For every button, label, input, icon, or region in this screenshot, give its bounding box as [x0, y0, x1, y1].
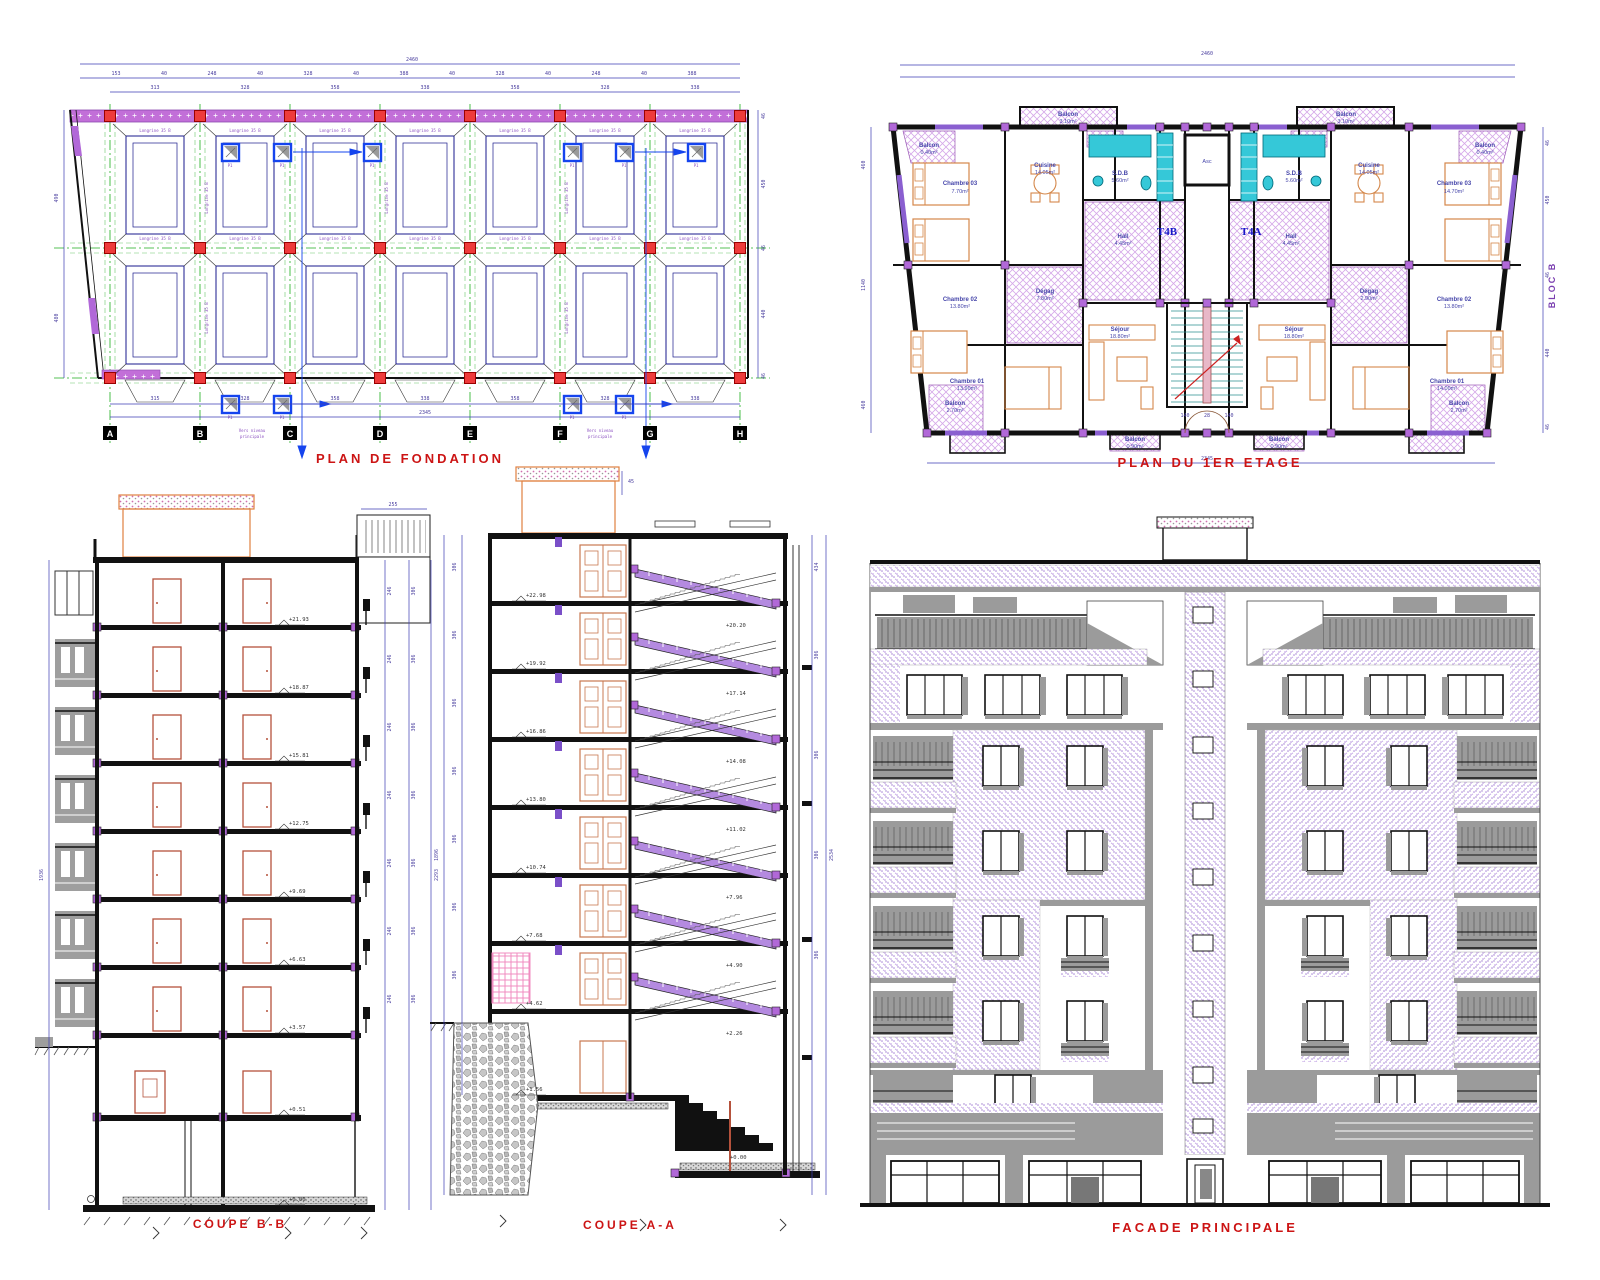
svg-text:Longrine 35 B: Longrine 35 B [139, 236, 171, 241]
svg-text:+7.96: +7.96 [726, 895, 743, 901]
svg-text:490: 490 [54, 193, 60, 202]
svg-text:Séjour: Séjour [1285, 327, 1304, 333]
apartment-label-t4a: T4A [1241, 226, 1262, 238]
svg-text:358: 358 [330, 396, 339, 402]
svg-text:Longrine 35 B: Longrine 35 B [229, 236, 261, 241]
svg-text:246: 246 [387, 586, 393, 595]
svg-text:46: 46 [1545, 272, 1551, 278]
svg-text:5.60m²: 5.60m² [1111, 178, 1128, 184]
svg-text:Longrine 35 B: Longrine 35 B [319, 236, 351, 241]
svg-text:Longrine 35 B: Longrine 35 B [499, 128, 531, 133]
svg-text:Balcon: Balcon [1475, 143, 1495, 149]
svg-text:13.80m²: 13.80m² [1444, 304, 1464, 310]
storeys [488, 537, 820, 1178]
svg-text:+15.81: +15.81 [289, 753, 309, 759]
svg-text:18.80m²: 18.80m² [1284, 334, 1304, 340]
svg-text:315: 315 [150, 396, 159, 402]
svg-text:450: 450 [1545, 195, 1551, 204]
svg-text:5.60m²: 5.60m² [1285, 178, 1302, 184]
svg-text:7.70m²: 7.70m² [951, 189, 968, 195]
svg-text:2460: 2460 [406, 57, 418, 63]
svg-text:+9.69: +9.69 [289, 889, 306, 895]
svg-text:Balcon: Balcon [1125, 437, 1145, 443]
svg-text:D: D [377, 429, 384, 439]
svg-text:1140: 1140 [861, 279, 867, 291]
svg-text:14.00m²: 14.00m² [1437, 386, 1457, 392]
svg-text:4.45m²: 4.45m² [1114, 241, 1131, 247]
svg-text:460: 460 [861, 160, 867, 169]
svg-text:Chambre 02: Chambre 02 [1437, 297, 1472, 303]
plan-left-half [889, 107, 1207, 453]
svg-text:+6.63: +6.63 [289, 957, 306, 963]
footing-cells [113, 124, 737, 402]
svg-text:246: 246 [387, 790, 393, 799]
svg-text:Longrine 35 B: Longrine 35 B [204, 302, 209, 334]
svg-text:434: 434 [814, 562, 820, 571]
svg-text:40: 40 [257, 71, 263, 77]
svg-text:P1: P1 [228, 163, 233, 168]
svg-text:Longrine 35 B: Longrine 35 B [564, 302, 569, 334]
svg-text:P1: P1 [280, 415, 285, 420]
roof-structure: 45 [490, 467, 788, 539]
svg-text:Chambre 01: Chambre 01 [1430, 379, 1465, 385]
svg-text:Longrine 35 B: Longrine 35 B [679, 128, 711, 133]
svg-text:Longrine 35 B: Longrine 35 B [589, 128, 621, 133]
svg-text:+20.20: +20.20 [726, 623, 746, 629]
svg-text:Asc: Asc [1202, 159, 1211, 165]
svg-text:1896: 1896 [434, 849, 440, 861]
svg-text:C: C [287, 429, 294, 439]
plan-right-half [1207, 107, 1525, 453]
svg-text:P1: P1 [370, 163, 375, 168]
svg-text:46: 46 [761, 245, 767, 251]
svg-text:Longrine 35 B: Longrine 35 B [319, 128, 351, 133]
svg-text:306: 306 [452, 970, 458, 979]
svg-text:306: 306 [452, 562, 458, 571]
svg-text:2460: 2460 [1201, 51, 1213, 57]
svg-text:+19.92: +19.92 [526, 661, 546, 667]
svg-text:P1: P1 [570, 415, 575, 420]
svg-text:248: 248 [207, 71, 216, 77]
svg-text:306: 306 [452, 698, 458, 707]
section-walls [490, 533, 812, 1175]
svg-text:328: 328 [303, 71, 312, 77]
svg-text:S.D.B: S.D.B [1112, 171, 1129, 177]
svg-text:+14.08: +14.08 [726, 759, 746, 765]
svg-text:45: 45 [628, 479, 634, 485]
svg-text:+1.56: +1.56 [526, 1087, 543, 1093]
svg-text:13.80m²: 13.80m² [950, 304, 970, 310]
panel-plan-fondation: P1P1P1P1P1P1 P1P1P1P1 Longrine 35 BLongr… [40, 48, 780, 480]
facade-left-half [870, 563, 1163, 1205]
svg-text:40: 40 [353, 71, 359, 77]
svg-text:P1: P1 [694, 163, 699, 168]
svg-text:P1: P1 [570, 163, 575, 168]
svg-text:H: H [737, 429, 744, 439]
svg-text:7.80m²: 7.80m² [1036, 296, 1053, 302]
svg-text:Hall: Hall [1117, 234, 1128, 240]
svg-text:+0.00: +0.00 [730, 1155, 747, 1161]
svg-text:principale: principale [240, 434, 265, 439]
svg-text:2345: 2345 [419, 410, 431, 416]
svg-text:+3.57: +3.57 [289, 1025, 306, 1031]
svg-text:246: 246 [387, 654, 393, 663]
svg-text:40: 40 [161, 71, 167, 77]
svg-text:Longrine 35 B: Longrine 35 B [229, 128, 261, 133]
panel-coupe-aa: 45 +22.98+19.92+16.86+13.80+10.74+7.68+4… [430, 455, 830, 1250]
svg-text:358: 358 [510, 396, 519, 402]
svg-text:Balcon: Balcon [945, 401, 965, 407]
left-balconies [35, 571, 97, 1055]
svg-text:principale: principale [588, 434, 613, 439]
svg-text:0.90m²: 0.90m² [1126, 444, 1143, 450]
svg-text:+0.51: +0.51 [289, 1107, 306, 1113]
svg-text:358: 358 [330, 85, 339, 91]
svg-text:0.40m²: 0.40m² [920, 150, 937, 156]
svg-text:+4.90: +4.90 [726, 963, 743, 969]
svg-text:328: 328 [600, 396, 609, 402]
svg-text:440: 440 [761, 309, 767, 318]
panel-coupe-bb: 255 +21.93+18.87+15.81+12.75+9.69+6.63+3… [35, 475, 445, 1245]
svg-text:Balcon: Balcon [1336, 112, 1356, 118]
svg-text:+10.74: +10.74 [526, 865, 547, 871]
svg-text:3.10m²: 3.10m² [1059, 119, 1076, 125]
svg-text:+4.62: +4.62 [526, 1001, 543, 1007]
apartment-label-t4b: T4B [1157, 226, 1178, 238]
svg-text:2534: 2534 [829, 849, 835, 861]
svg-text:306: 306 [814, 650, 820, 659]
svg-text:3.10m²: 3.10m² [1337, 119, 1354, 125]
svg-text:246: 246 [387, 926, 393, 935]
svg-text:+0.00: +0.00 [289, 1197, 306, 1203]
svg-text:46: 46 [1545, 424, 1551, 430]
bloc-label: BLOC B [1547, 262, 1557, 309]
svg-text:248: 248 [591, 71, 600, 77]
svg-text:14.70m²: 14.70m² [1444, 189, 1464, 195]
svg-text:Longrine 35 B: Longrine 35 B [139, 128, 171, 133]
svg-text:40: 40 [449, 71, 455, 77]
svg-text:P1: P1 [280, 163, 285, 168]
svg-text:P1: P1 [622, 415, 627, 420]
svg-text:Longrine 35 B: Longrine 35 B [409, 236, 441, 241]
svg-text:388: 388 [687, 71, 696, 77]
svg-text:328: 328 [240, 85, 249, 91]
svg-text:306: 306 [411, 790, 417, 799]
svg-text:+2.26: +2.26 [726, 1031, 743, 1037]
facade-right-half [1247, 563, 1540, 1205]
svg-text:328: 328 [495, 71, 504, 77]
svg-text:460: 460 [861, 400, 867, 409]
svg-text:140: 140 [1224, 413, 1233, 419]
drawing-sheet: P1P1P1P1P1P1 P1P1P1P1 Longrine 35 BLongr… [0, 0, 1600, 1280]
svg-text:G: G [646, 429, 653, 439]
svg-text:18.80m²: 18.80m² [1110, 334, 1130, 340]
svg-text:B: B [197, 429, 204, 439]
svg-text:14.05m²: 14.05m² [1359, 170, 1379, 176]
svg-text:+18.87: +18.87 [289, 685, 309, 691]
svg-text:Séjour: Séjour [1111, 327, 1130, 333]
svg-text:Chambre 03: Chambre 03 [1437, 181, 1472, 187]
svg-text:306: 306 [411, 926, 417, 935]
svg-text:46: 46 [1545, 140, 1551, 146]
svg-text:46: 46 [761, 113, 767, 119]
svg-text:Vers niveau: Vers niveau [239, 428, 266, 433]
svg-text:Longrine 35 B: Longrine 35 B [384, 182, 389, 214]
svg-text:0.40m²: 0.40m² [1476, 150, 1493, 156]
svg-text:358: 358 [510, 85, 519, 91]
svg-text:338: 338 [690, 396, 699, 402]
svg-text:338: 338 [420, 85, 429, 91]
svg-text:14.05m²: 14.05m² [1035, 170, 1055, 176]
svg-text:P1: P1 [622, 163, 627, 168]
entry-steps [675, 1095, 773, 1151]
svg-text:Chambre 03: Chambre 03 [943, 181, 978, 187]
svg-text:Longrine 35 B: Longrine 35 B [409, 128, 441, 133]
svg-text:40: 40 [641, 71, 647, 77]
title-plan-etage: PLAN DU 1ER ETAGE [855, 455, 1565, 470]
svg-text:306: 306 [411, 722, 417, 731]
coupe-aa-drawing: 45 +22.98+19.92+16.86+13.80+10.74+7.68+4… [430, 455, 830, 1250]
svg-text:2.90m²: 2.90m² [1360, 296, 1377, 302]
svg-text:140: 140 [1180, 413, 1189, 419]
svg-text:+16.86: +16.86 [526, 729, 546, 735]
svg-text:328: 328 [240, 396, 249, 402]
svg-text:Vers niveau: Vers niveau [587, 428, 614, 433]
svg-text:Balcon: Balcon [1269, 437, 1289, 443]
svg-text:313: 313 [150, 85, 159, 91]
svg-text:246: 246 [387, 722, 393, 731]
svg-text:306: 306 [452, 834, 458, 843]
grid-bubbles: A B C D E F G H Vers niveauprincipale Ve… [103, 426, 747, 440]
svg-text:480: 480 [54, 313, 60, 322]
svg-text:Balcon: Balcon [1058, 112, 1078, 118]
svg-text:4.45m²: 4.45m² [1282, 241, 1299, 247]
svg-text:255: 255 [388, 502, 397, 508]
svg-text:306: 306 [411, 654, 417, 663]
svg-text:Dégag: Dégag [1036, 289, 1055, 295]
svg-text:Chambre 01: Chambre 01 [950, 379, 985, 385]
storeys [93, 579, 370, 1205]
title-coupe-bb: COUPE B-B [35, 1217, 445, 1231]
svg-text:+13.80: +13.80 [526, 797, 546, 803]
svg-text:306: 306 [411, 994, 417, 1003]
svg-text:E: E [467, 429, 473, 439]
svg-text:Cuisine: Cuisine [1034, 163, 1056, 169]
svg-text:Balcon: Balcon [919, 143, 939, 149]
svg-text:28: 28 [1204, 413, 1210, 419]
svg-text:+11.02: +11.02 [726, 827, 746, 833]
svg-text:246: 246 [387, 858, 393, 867]
svg-text:+22.98: +22.98 [526, 593, 546, 599]
svg-text:Longrine 35 B: Longrine 35 B [499, 236, 531, 241]
coupe-bb-drawing: 255 +21.93+18.87+15.81+12.75+9.69+6.63+3… [35, 475, 445, 1245]
svg-text:153: 153 [111, 71, 120, 77]
svg-text:306: 306 [452, 630, 458, 639]
svg-text:2.70m²: 2.70m² [946, 408, 963, 414]
svg-text:F: F [557, 429, 563, 439]
svg-text:40: 40 [545, 71, 551, 77]
svg-text:306: 306 [452, 766, 458, 775]
panel-plan-etage: T4B T4A Asc Balcon0.40m² Chambre 037.70m… [855, 35, 1565, 480]
svg-text:Cuisine: Cuisine [1358, 163, 1380, 169]
svg-text:+17.14: +17.14 [726, 691, 747, 697]
svg-text:Hall: Hall [1285, 234, 1296, 240]
svg-text:Dégag: Dégag [1360, 289, 1379, 295]
coupe-bb-dimensions: 1936 246246246246246246246 3063063063063… [39, 560, 440, 1210]
svg-text:+12.75: +12.75 [289, 821, 309, 827]
svg-text:Longrine 35 B: Longrine 35 B [679, 236, 711, 241]
svg-text:338: 338 [690, 85, 699, 91]
svg-text:306: 306 [411, 858, 417, 867]
svg-text:328: 328 [600, 85, 609, 91]
svg-text:306: 306 [814, 850, 820, 859]
svg-text:+21.93: +21.93 [289, 617, 309, 623]
svg-text:Chambre 02: Chambre 02 [943, 297, 978, 303]
svg-text:306: 306 [411, 586, 417, 595]
svg-text:450: 450 [761, 179, 767, 188]
svg-text:Longrine 35 B: Longrine 35 B [564, 182, 569, 214]
fondation-drawing: P1P1P1P1P1P1 P1P1P1P1 Longrine 35 BLongr… [40, 48, 780, 480]
svg-text:Longrine 35 B: Longrine 35 B [204, 182, 209, 214]
svg-text:246: 246 [387, 994, 393, 1003]
svg-text:S.D.B: S.D.B [1286, 171, 1303, 177]
svg-text:440: 440 [1545, 348, 1551, 357]
svg-text:306: 306 [814, 950, 820, 959]
svg-text:13.90m²: 13.90m² [957, 386, 977, 392]
svg-text:388: 388 [399, 71, 408, 77]
svg-text:0.90m²: 0.90m² [1270, 444, 1287, 450]
svg-text:Balcon: Balcon [1449, 401, 1469, 407]
title-facade: FACADE PRINCIPALE [845, 1220, 1565, 1235]
svg-text:Longrine 35 B: Longrine 35 B [589, 236, 621, 241]
panel-facade: FACADE PRINCIPALE [845, 515, 1565, 1245]
svg-text:2.70m²: 2.70m² [1450, 408, 1467, 414]
stair-stringer [1203, 307, 1211, 403]
svg-text:+7.68: +7.68 [526, 933, 543, 939]
svg-text:1936: 1936 [39, 869, 45, 881]
svg-text:338: 338 [420, 396, 429, 402]
title-coupe-aa: COUPE A-A [430, 1218, 830, 1232]
facade-drawing [845, 515, 1565, 1245]
svg-text:306: 306 [452, 902, 458, 911]
svg-text:A: A [107, 429, 114, 439]
svg-text:306: 306 [814, 750, 820, 759]
svg-text:P1: P1 [228, 415, 233, 420]
svg-text:46: 46 [761, 373, 767, 379]
etage-drawing: T4B T4A Asc Balcon0.40m² Chambre 037.70m… [855, 35, 1565, 480]
